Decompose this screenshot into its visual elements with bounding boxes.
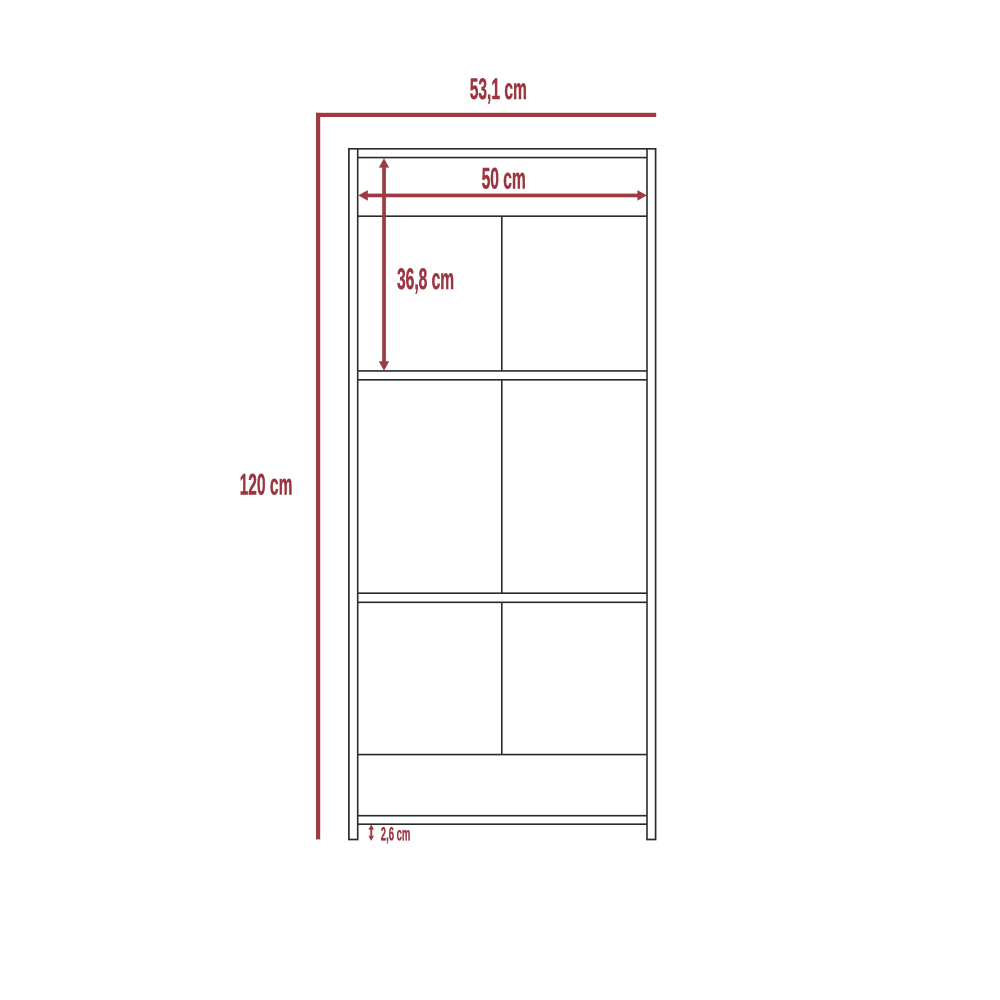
svg-text:36,8 cm: 36,8 cm [397,263,454,295]
svg-text:2,6 cm: 2,6 cm [381,824,411,846]
svg-text:53,1 cm: 53,1 cm [470,73,527,105]
svg-text:50 cm: 50 cm [482,162,526,194]
svg-text:120 cm: 120 cm [240,468,293,500]
